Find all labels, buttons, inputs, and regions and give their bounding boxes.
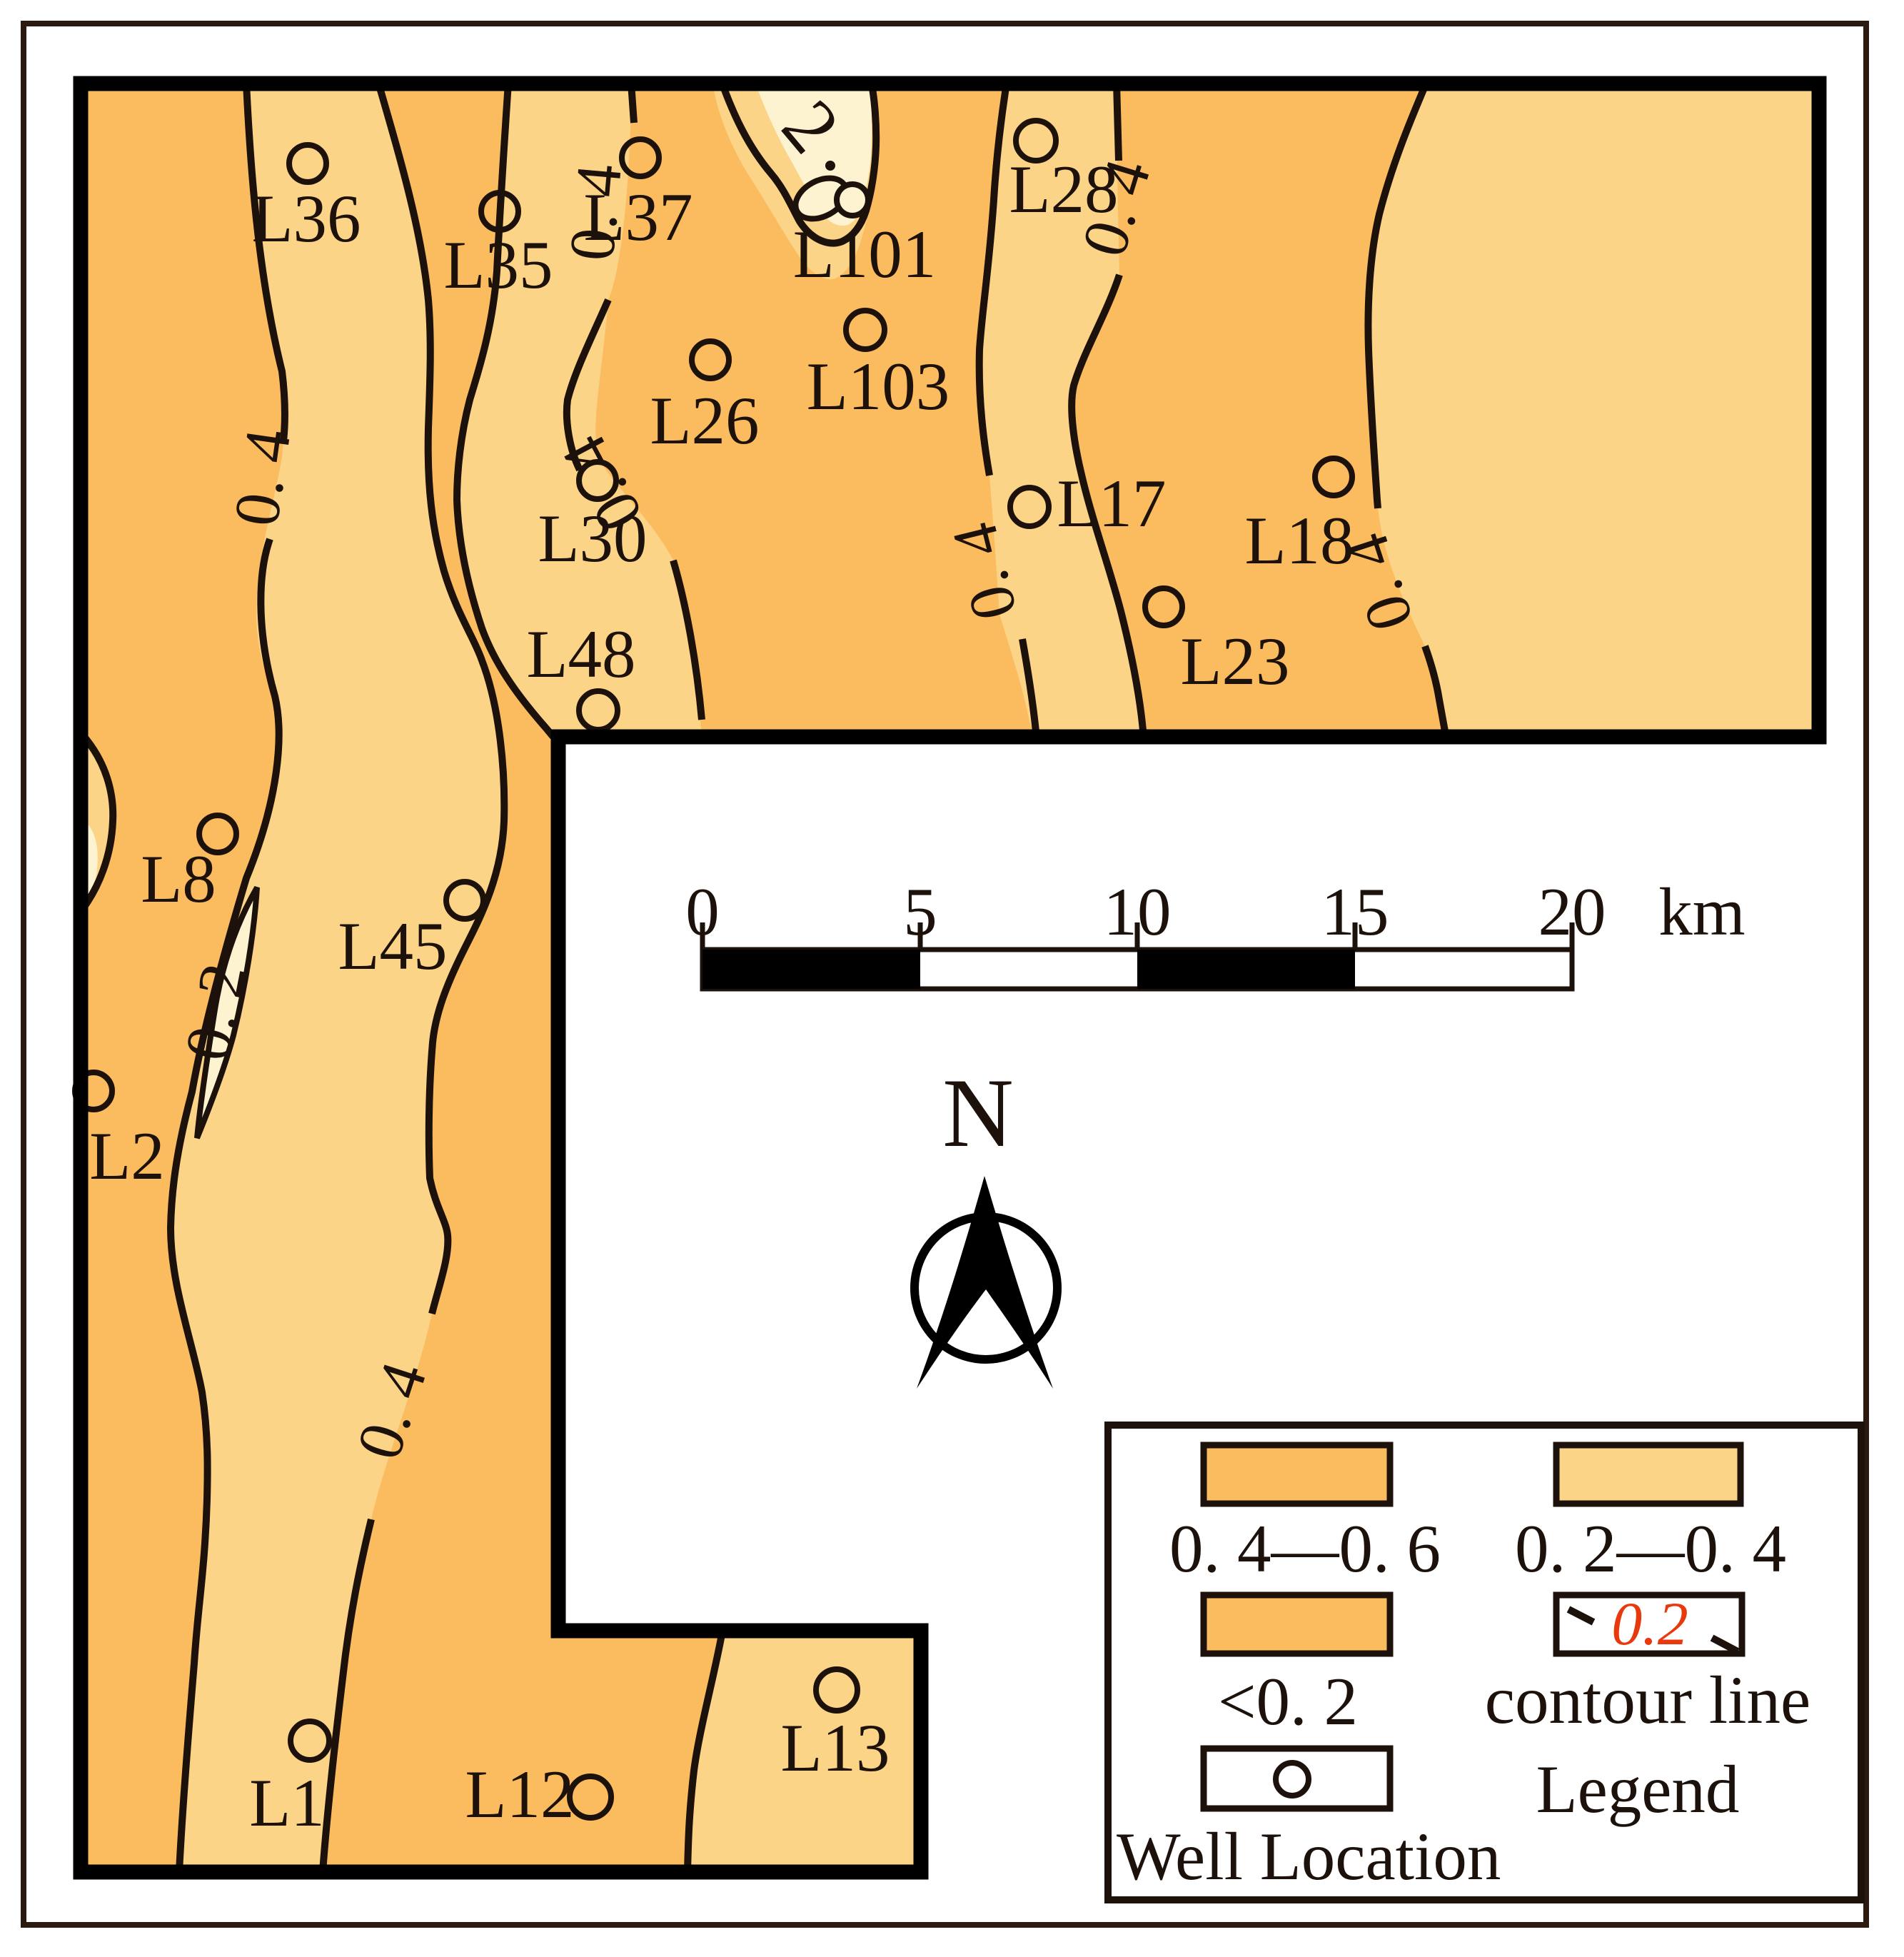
svg-text:15: 15 — [1321, 874, 1389, 950]
svg-text:L23: L23 — [1180, 623, 1289, 699]
svg-text:L13: L13 — [780, 1710, 890, 1786]
svg-text:L12: L12 — [465, 1756, 574, 1832]
svg-text:0. 2—0. 4: 0. 2—0. 4 — [1515, 1511, 1786, 1586]
svg-text:km: km — [1658, 874, 1745, 950]
svg-text:L26: L26 — [650, 383, 759, 458]
svg-text:L36: L36 — [251, 181, 361, 256]
svg-text:10: 10 — [1104, 874, 1172, 950]
svg-text:L1: L1 — [249, 1765, 325, 1841]
svg-text:L17: L17 — [1057, 466, 1166, 541]
svg-text:0. 4—0. 6: 0. 4—0. 6 — [1169, 1511, 1441, 1586]
svg-text:L103: L103 — [807, 348, 950, 424]
svg-text:contour line: contour line — [1485, 1662, 1810, 1738]
svg-text:<0. 2: <0. 2 — [1218, 1664, 1358, 1739]
svg-text:N: N — [942, 1058, 1014, 1167]
svg-text:L8: L8 — [141, 841, 216, 917]
svg-text:0. 4: 0. 4 — [556, 161, 635, 263]
svg-text:20: 20 — [1538, 874, 1606, 950]
svg-text:0.2: 0.2 — [1611, 1589, 1688, 1658]
svg-text:L45: L45 — [338, 908, 447, 984]
svg-text:L2: L2 — [89, 1118, 165, 1194]
svg-text:Well Location: Well Location — [1117, 1818, 1501, 1894]
svg-text:0. 4: 0. 4 — [221, 425, 304, 530]
svg-text:0: 0 — [685, 874, 720, 950]
svg-text:L101: L101 — [793, 216, 937, 292]
svg-text:L48: L48 — [526, 616, 635, 692]
svg-text:Legend: Legend — [1536, 1751, 1740, 1827]
svg-text:5: 5 — [903, 874, 937, 950]
svg-text:L35: L35 — [443, 227, 553, 303]
